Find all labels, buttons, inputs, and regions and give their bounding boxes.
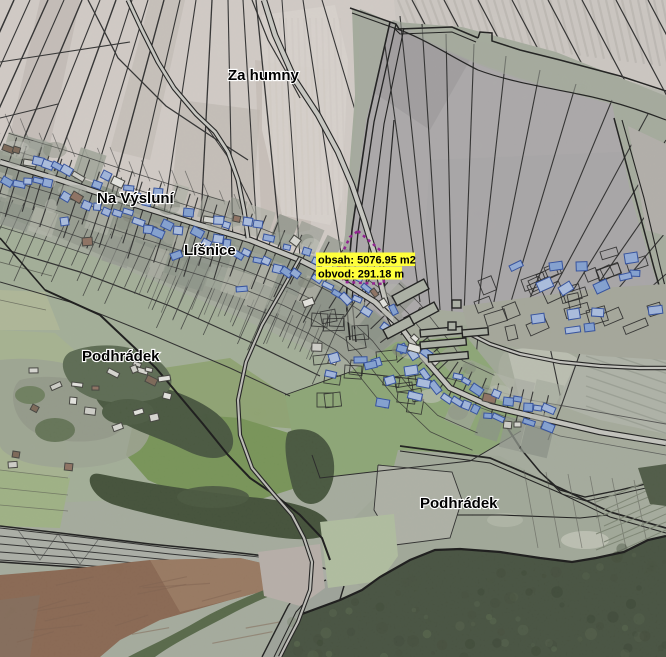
svg-text:Líšnice: Líšnice [184,242,236,259]
svg-text:Za humny: Za humny [228,67,299,84]
svg-text:obvod: 291.18 m: obvod: 291.18 m [318,269,404,281]
svg-text:obsah: 5076.95 m2: obsah: 5076.95 m2 [318,255,416,267]
svg-text:Podhrádek: Podhrádek [82,348,160,365]
svg-text:Podhrádek: Podhrádek [420,495,498,512]
svg-text:Na Výsluní: Na Výsluní [97,190,175,207]
